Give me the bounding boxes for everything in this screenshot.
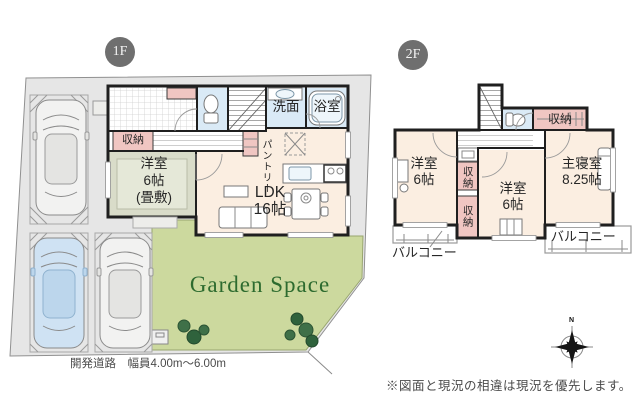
label-tatami-room: 洋室 6帖 (畳敷): [110, 155, 198, 206]
compass-rose: [551, 326, 593, 368]
label-bathroom: 浴室: [306, 99, 348, 115]
desk-2f-center: [500, 219, 522, 235]
floor-badge-2f: 2F: [398, 40, 428, 70]
floorplan-graphics: [0, 0, 640, 400]
car-white-bottom: [97, 238, 153, 348]
car-white-top: [33, 100, 89, 215]
label-balcony-right: バルコニー: [551, 229, 616, 245]
label-closet-2f-top: 収納: [533, 112, 587, 126]
label-closet-2f-bottom: 収納: [461, 200, 474, 232]
label-closet-2f-mid: 収納: [461, 164, 474, 190]
car-blue: [31, 238, 87, 348]
label-bedroom-2f-center: 洋室 6帖: [490, 181, 536, 213]
label-road: 開発道路 幅員4.00m〜6.00m: [70, 355, 226, 371]
hallway-2f: [457, 133, 533, 148]
floor-badge-1f: 1F: [105, 37, 135, 67]
shoe-cabinet: [167, 88, 196, 99]
toilet-fixture-1f: [204, 95, 218, 123]
floorplan-canvas: 1F 2F 収納 洋室 6帖 (畳敷) LDK 16帖 洗面 浴室 パントリー …: [0, 0, 640, 400]
label-pantry: パントリー: [259, 130, 271, 202]
label-garden-space: Garden Space: [184, 272, 336, 298]
label-washroom: 洗面: [266, 99, 306, 115]
balcony-left: [393, 226, 457, 247]
hallway-1f: [153, 131, 243, 151]
pantry-box: [243, 131, 258, 156]
cabinet-2f: [458, 148, 478, 161]
label-closet-1f: 収納: [113, 134, 153, 147]
tatami-porch: [133, 217, 177, 228]
kitchen-counter: [283, 164, 347, 183]
meter-box: [152, 330, 168, 344]
label-balcony-left: バルコニー: [392, 245, 457, 261]
label-master-bedroom: 主寝室 8.25帖: [551, 156, 613, 188]
label-bedroom-2f-left: 洋室 6帖: [398, 156, 450, 188]
label-disclaimer: ※図面と現況の相違は現況を優先します。: [386, 375, 632, 394]
porch-step: [93, 101, 107, 115]
toilet-fixture-2f: [506, 113, 525, 126]
compass-north-label: N: [569, 317, 574, 324]
